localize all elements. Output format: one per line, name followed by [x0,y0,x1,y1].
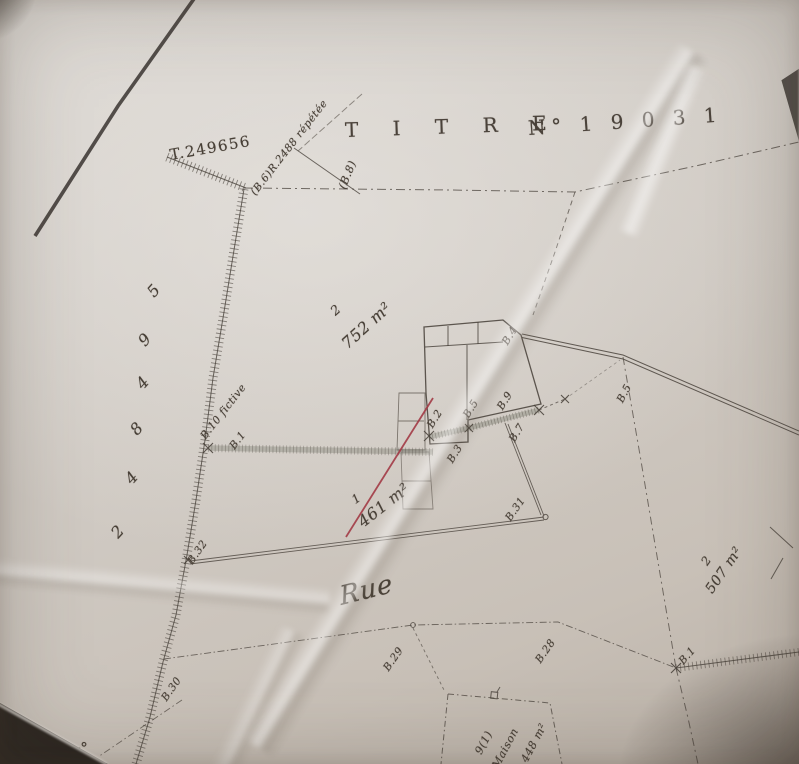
parcel1-boundaries [190,423,548,564]
east-parcel-boundaries [522,334,799,764]
survey-band [208,360,620,452]
bottom-crossing-line [98,700,182,757]
street-south-line [164,622,676,692]
heavy-boundary-line [35,0,196,236]
road-hatched-line [136,157,799,764]
cadastral-plan-photo: T I T R E N° 1 9 0 3 1 T.249656 (B.6)R.2… [0,0,799,764]
